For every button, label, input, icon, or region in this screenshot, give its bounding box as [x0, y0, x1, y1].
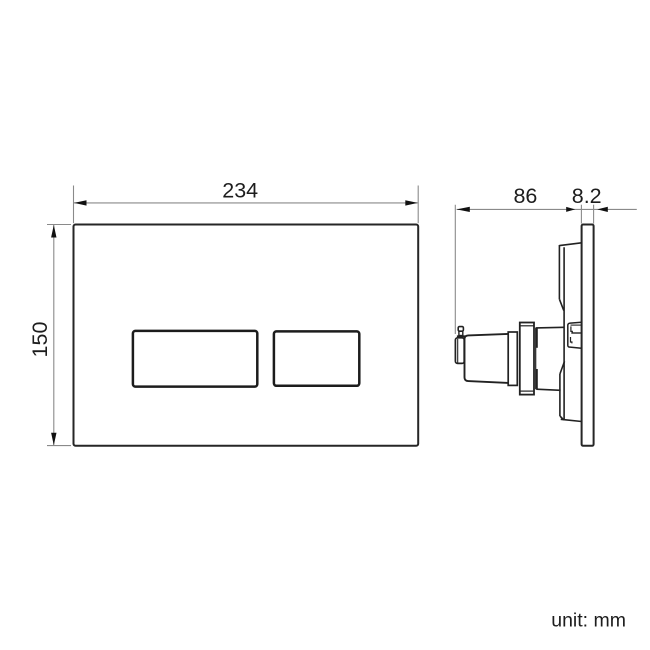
svg-text:234: 234: [222, 179, 258, 203]
svg-text:unit: mm: unit: mm: [551, 610, 626, 632]
svg-text:8.2: 8.2: [572, 184, 602, 208]
svg-text:150: 150: [28, 322, 52, 358]
svg-text:86: 86: [513, 184, 537, 208]
